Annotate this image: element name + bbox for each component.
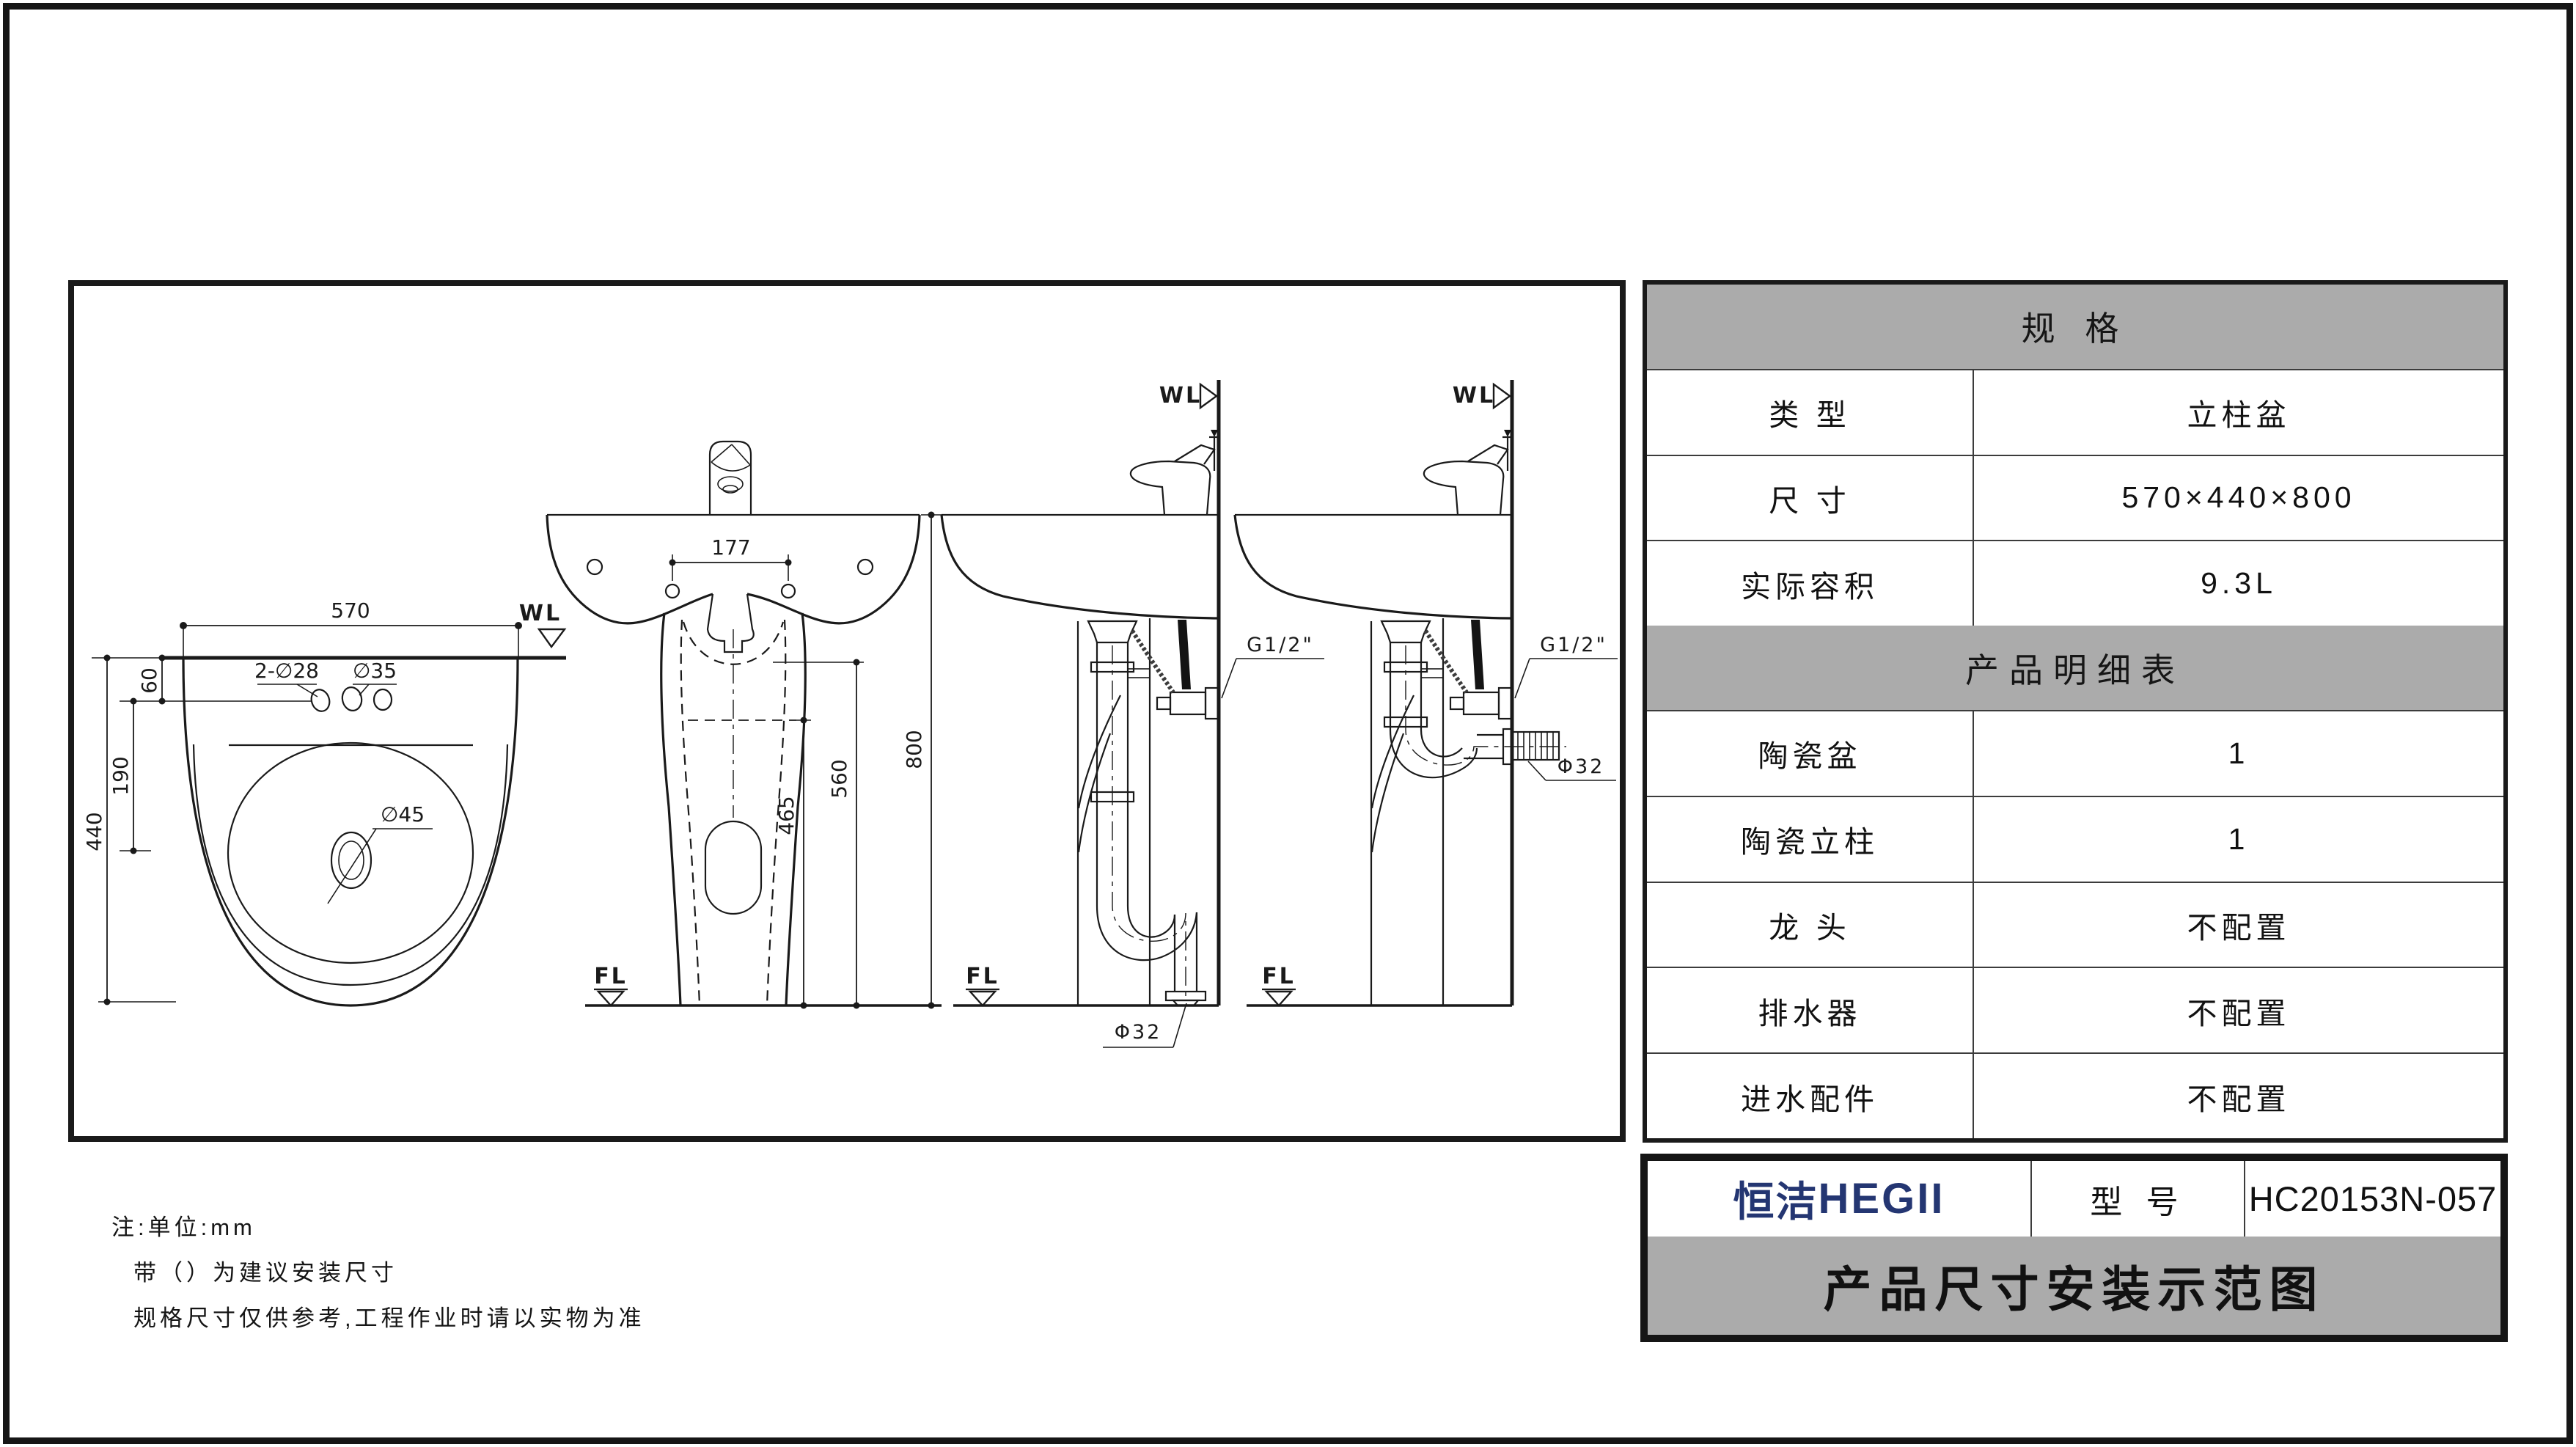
supply-hose-icon <box>1132 631 1173 692</box>
spec-label: 尺 寸 <box>1647 456 1973 541</box>
spec-label: 进水配件 <box>1647 1054 1973 1138</box>
note-units: 注:单位:mm <box>111 1209 645 1242</box>
top-depth-dim: 440 <box>82 812 106 851</box>
center-hole-label: ∅35 <box>353 659 397 683</box>
pedestal-top-dim: 560 <box>827 759 851 798</box>
spec-value: 不配置 <box>1973 1054 2503 1138</box>
note-suggested-size: 带（）为建议安装尺寸 <box>133 1254 645 1287</box>
spec-value: 不配置 <box>1973 883 2503 967</box>
fl-label-front: FL <box>594 964 628 989</box>
side-view-floor-drain: WL <box>942 380 1324 1047</box>
model-label: 型 号 <box>2030 1161 2244 1237</box>
top-view: 570 WL 440 190 60 2-∅28 ∅35 <box>82 598 566 1005</box>
detail-row-pedestal: 陶瓷立柱 1 <box>1647 796 2503 882</box>
detail-row-drain: 排水器 不配置 <box>1647 967 2503 1052</box>
spec-label: 类 型 <box>1647 370 1973 455</box>
spec-value: 不配置 <box>1973 968 2503 1052</box>
fl-marker-icon <box>598 992 623 1005</box>
sheet-title: 产品尺寸安装示范图 <box>1648 1237 2500 1335</box>
detail-row-inlet: 进水配件 不配置 <box>1647 1052 2503 1138</box>
detail-row-faucet: 龙 头 不配置 <box>1647 882 2503 967</box>
faucet-holes-label: 2-∅28 <box>254 659 319 683</box>
detail-header: 产品明细表 <box>1647 626 2503 710</box>
fl-marker-icon <box>970 992 995 1005</box>
model-number: HC20153N-057 <box>2244 1161 2500 1237</box>
wl-label-side1: WL <box>1159 383 1202 409</box>
top-width-dim: 570 <box>331 598 370 623</box>
top-bowl-offset-dim: 190 <box>109 756 133 795</box>
wl-label-top: WL <box>519 601 562 626</box>
spec-row-capacity: 实际容积 9.3L <box>1647 540 2503 626</box>
spec-label: 陶瓷立柱 <box>1647 797 1973 882</box>
title-block-top-row: 恒洁HEGII 型 号 HC20153N-057 <box>1648 1161 2500 1237</box>
spec-value: 立柱盆 <box>1973 370 2503 455</box>
faucet-side-icon <box>1424 461 1503 515</box>
spec-value: 570×440×800 <box>1973 456 2503 541</box>
spec-label: 实际容积 <box>1647 541 1973 626</box>
overall-height-dim: 800 <box>902 730 926 769</box>
spec-label: 排水器 <box>1647 968 1973 1052</box>
floor-drain-size-label: Φ32 <box>1115 1021 1162 1044</box>
supply-hose-icon <box>1425 631 1467 692</box>
pedestal-mid-dim: 465 <box>774 796 799 835</box>
inlet-size-label: G1/2" <box>1540 634 1607 656</box>
spec-table: 规 格 类 型 立柱盆 尺 寸 570×440×800 实际容积 9.3L 产品… <box>1643 280 2508 1143</box>
spec-label: 陶瓷盆 <box>1647 711 1973 796</box>
brand-logo-en: HEGII <box>1819 1174 1945 1223</box>
wl-marker-icon <box>539 629 565 647</box>
spec-label: 龙 头 <box>1647 883 1973 967</box>
installation-drawing: 570 WL 440 190 60 2-∅28 ∅35 <box>62 273 1632 1149</box>
spec-value: 9.3L <box>1973 541 2503 626</box>
note-disclaimer: 规格尺寸仅供参考,工程作业时请以实物为准 <box>133 1300 645 1333</box>
title-block: 恒洁HEGII 型 号 HC20153N-057 产品尺寸安装示范图 <box>1640 1154 2508 1342</box>
faucet-front-icon <box>710 442 751 515</box>
drain-dia-label: ∅45 <box>381 802 425 827</box>
spec-value: 1 <box>1973 797 2503 882</box>
brand-logo-cn: 恒洁 <box>1733 1169 1819 1228</box>
fl-label-side1: FL <box>966 964 999 989</box>
spec-row-type: 类 型 立柱盆 <box>1647 369 2503 455</box>
spec-header: 规 格 <box>1647 285 2503 369</box>
faucet-side-icon <box>1131 461 1210 515</box>
spec-value: 1 <box>1973 711 2503 796</box>
wl-marker-icon <box>1200 384 1217 408</box>
wall-drain-size-label: Φ32 <box>1557 755 1605 778</box>
spec-row-size: 尺 寸 570×440×800 <box>1647 455 2503 541</box>
fl-label-side2: FL <box>1262 964 1296 989</box>
wl-marker-icon <box>1494 384 1510 408</box>
top-hole-offset-dim: 60 <box>137 667 161 694</box>
front-view: 177 465 560 800 FL <box>547 442 942 1009</box>
side-view-wall-drain: WL <box>1235 380 1618 1005</box>
notes: 注:单位:mm 带（）为建议安装尺寸 规格尺寸仅供参考,工程作业时请以实物为准 <box>111 1209 645 1345</box>
detail-row-basin: 陶瓷盆 1 <box>1647 710 2503 796</box>
spec-sheet: 570 WL 440 190 60 2-∅28 ∅35 <box>0 0 2576 1447</box>
inlet-size-label: G1/2" <box>1247 634 1314 656</box>
brand-logo: 恒洁HEGII <box>1648 1161 2030 1237</box>
fl-marker-icon <box>1266 992 1291 1005</box>
faucet-spacing-dim: 177 <box>711 535 750 560</box>
wl-label-side2: WL <box>1453 383 1495 409</box>
